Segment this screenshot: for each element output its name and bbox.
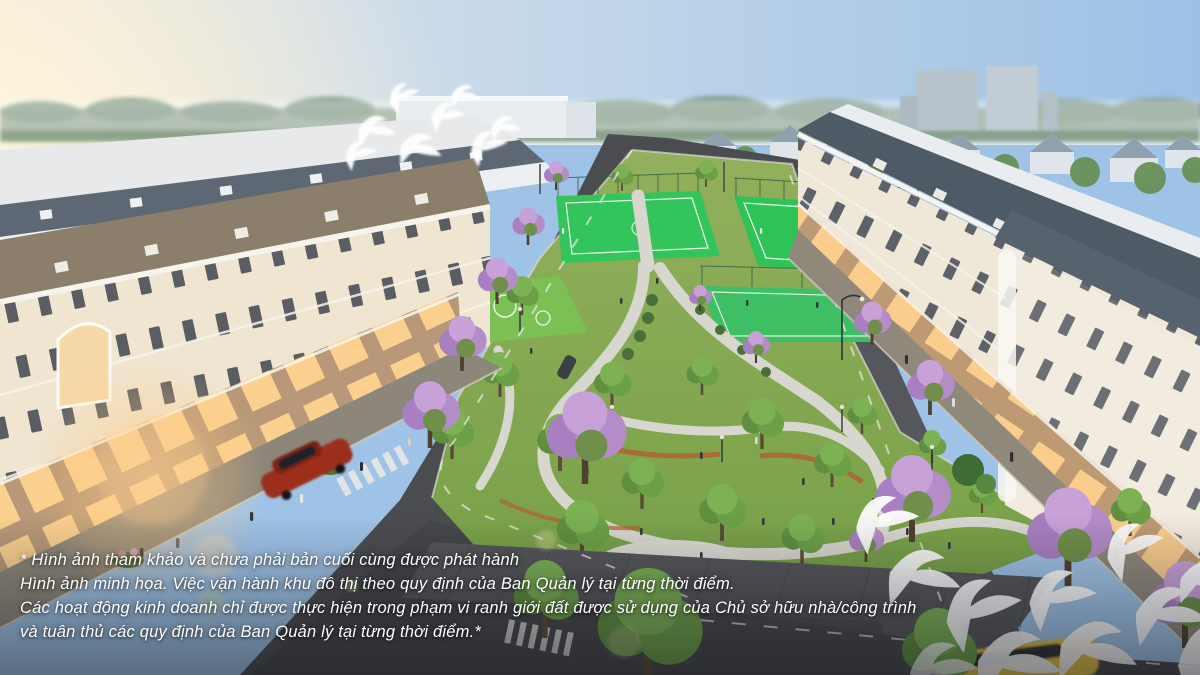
disclaimer-line-4: và tuân thủ các quy định của Ban Quản lý… [20, 620, 940, 644]
disclaimer-line-3: Các hoạt động kinh doanh chỉ được thực h… [20, 596, 940, 620]
render-screenshot: * Hình ảnh tham khảo và chưa phải bản cu… [0, 0, 1200, 675]
disclaimer-line-2: Hình ảnh minh họa. Việc vận hành khu đô … [20, 572, 940, 596]
disclaimer-text: * Hình ảnh tham khảo và chưa phải bản cu… [20, 548, 940, 644]
disclaimer-line-1: * Hình ảnh tham khảo và chưa phải bản cu… [20, 548, 940, 572]
